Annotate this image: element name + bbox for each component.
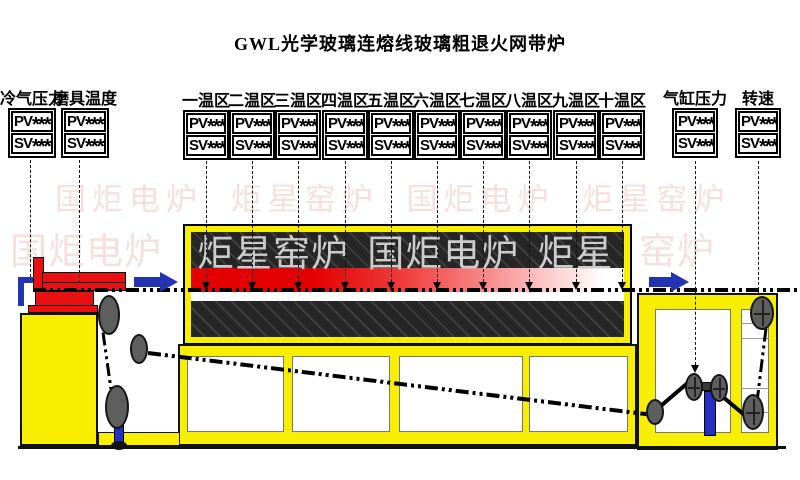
- divider: [741, 388, 769, 389]
- zone-1-temperature-gauge: 一温区PV****SV****: [183, 87, 229, 163]
- sv-value: ****: [623, 144, 642, 154]
- belt-segment: [102, 332, 113, 389]
- sv-row[interactable]: SV****: [325, 135, 365, 156]
- flow-arrow-icon: [649, 277, 671, 287]
- pv-value: ****: [623, 122, 642, 132]
- arrow-down-icon: [202, 282, 210, 290]
- pv-row[interactable]: PV****: [186, 113, 226, 134]
- sv-label: SV: [605, 137, 623, 154]
- gauge-display-box[interactable]: PV****SV****: [672, 108, 718, 158]
- support-window: [292, 356, 390, 432]
- gauge-label: 转速: [742, 85, 774, 109]
- pv-row[interactable]: PV****: [602, 113, 642, 134]
- sv-value: ****: [299, 144, 318, 154]
- pv-row[interactable]: PV****: [675, 111, 715, 132]
- gauge-label: 十温区: [598, 87, 646, 111]
- zone-5-temperature-gauge: 五温区PV****SV****: [368, 87, 414, 163]
- zone-3-temperature-gauge: 三温区PV****SV****: [275, 87, 321, 163]
- sv-value: ****: [577, 144, 596, 154]
- pv-row[interactable]: PV****: [11, 111, 53, 132]
- sv-row[interactable]: SV****: [417, 135, 457, 156]
- floor-line: [18, 446, 786, 449]
- sv-label: SV: [512, 137, 530, 154]
- zone-2-temperature-gauge: 二温区PV****SV****: [229, 87, 275, 163]
- belt-path-strip: [191, 292, 624, 301]
- pv-label: PV: [328, 115, 346, 132]
- cylinder-pressure-gauge: 气缸压力PV****SV****: [672, 85, 718, 161]
- pv-row[interactable]: PV****: [371, 113, 411, 134]
- sv-label: SV: [328, 137, 346, 154]
- pv-value: ****: [438, 122, 457, 132]
- zone-10-temperature-gauge: 十温区PV****SV****: [599, 87, 645, 163]
- sv-value: ****: [253, 144, 272, 154]
- gauge-label: 八温区: [505, 87, 553, 111]
- pv-row[interactable]: PV****: [509, 113, 549, 134]
- pv-value: ****: [85, 120, 106, 130]
- cylinder-foot: [111, 441, 127, 450]
- zone-7-temperature-gauge: 七温区PV****SV****: [460, 87, 506, 163]
- sv-row[interactable]: SV****: [371, 135, 411, 156]
- pv-row[interactable]: PV****: [463, 113, 503, 134]
- sv-value: ****: [438, 144, 457, 154]
- sv-value: ****: [346, 144, 365, 154]
- gauge-connector-line: [483, 161, 484, 282]
- pv-row[interactable]: PV****: [232, 113, 272, 134]
- pv-value: ****: [392, 122, 411, 132]
- pv-value: ****: [577, 122, 596, 132]
- flow-arrow-icon: [134, 277, 160, 287]
- roller: [685, 373, 703, 401]
- pv-label: PV: [678, 113, 696, 130]
- gauge-display-box[interactable]: PV****SV****: [368, 110, 414, 160]
- page-title: GWL光学玻璃连熔线玻璃粗退火网带炉: [0, 30, 800, 56]
- gauge-connector-line: [345, 161, 346, 282]
- sv-row[interactable]: SV****: [278, 135, 318, 156]
- pusher-slide: [35, 291, 94, 306]
- gauge-label: 磨具温度: [53, 85, 117, 109]
- support-window: [529, 356, 628, 432]
- sv-row[interactable]: SV****: [675, 133, 715, 154]
- sv-label: SV: [420, 137, 438, 154]
- pv-row[interactable]: PV****: [64, 111, 106, 132]
- zone-6-temperature-gauge: 六温区PV****SV****: [414, 87, 460, 163]
- roller: [710, 374, 728, 402]
- arrow-down-icon: [572, 282, 580, 290]
- gauge-label: 一温区: [182, 87, 230, 111]
- pv-value: ****: [253, 122, 272, 132]
- mold-temperature-gauge: 磨具温度PV****SV****: [61, 85, 109, 161]
- gauge-connector-line: [79, 160, 80, 283]
- gauge-connector-line: [206, 161, 207, 282]
- sv-label: SV: [678, 135, 696, 152]
- gauge-display-box[interactable]: PV****SV****: [414, 110, 460, 160]
- sv-row[interactable]: SV****: [186, 135, 226, 156]
- sv-label: SV: [559, 137, 577, 154]
- sv-value: ****: [484, 144, 503, 154]
- gauge-connector-line: [695, 161, 696, 365]
- arrow-down-icon: [618, 282, 626, 290]
- pv-label: PV: [67, 113, 85, 130]
- gauge-connector-line: [576, 161, 577, 282]
- sv-label: SV: [14, 135, 32, 152]
- sv-label: SV: [374, 137, 392, 154]
- gauge-display-box[interactable]: PV****SV****: [183, 110, 229, 160]
- gauge-display-box[interactable]: PV****SV****: [506, 110, 552, 160]
- gauge-label: 七温区: [459, 87, 507, 111]
- sv-label: SV: [67, 135, 85, 152]
- gauge-display-box[interactable]: PV****SV****: [735, 108, 781, 158]
- pv-value: ****: [484, 122, 503, 132]
- roller: [98, 295, 120, 335]
- gauge-label: 三温区: [274, 87, 322, 111]
- pv-label: PV: [235, 115, 253, 132]
- pv-row[interactable]: PV****: [325, 113, 365, 134]
- pv-label: PV: [466, 115, 484, 132]
- roller: [130, 334, 148, 364]
- flow-arrow-icon: [671, 272, 689, 292]
- hmi-screen: GWL光学玻璃连熔线玻璃粗退火网带炉 国炬电炉 炬星窑炉 国炬电炉 炬星窑炉 国…: [0, 0, 800, 480]
- watermark-row2-right: 窑炉: [639, 221, 715, 275]
- pv-label: PV: [605, 115, 623, 132]
- pv-row[interactable]: PV****: [278, 113, 318, 134]
- gauge-connector-line: [252, 161, 253, 282]
- gauge-display-box[interactable]: PV****SV****: [553, 110, 599, 160]
- gauge-display-box[interactable]: PV****SV****: [599, 110, 645, 160]
- flow-arrow-icon: [160, 272, 178, 292]
- roller: [105, 385, 129, 429]
- sv-row[interactable]: SV****: [556, 135, 596, 156]
- sv-row[interactable]: SV****: [232, 135, 272, 156]
- roller: [646, 399, 664, 425]
- zone-8-temperature-gauge: 八温区PV****SV****: [506, 87, 552, 163]
- sv-value: ****: [85, 142, 106, 152]
- watermark-row1: 国炬电炉 炬星窑炉 国炬电炉 炬星窑炉: [55, 174, 730, 219]
- zone-9-temperature-gauge: 九温区PV****SV****: [553, 87, 599, 163]
- pv-label: PV: [14, 113, 32, 130]
- speed-gauge: 转速PV****SV****: [735, 85, 781, 161]
- arrow-down-icon: [294, 282, 302, 290]
- sv-label: SV: [741, 135, 759, 152]
- gauge-label: 二温区: [228, 87, 276, 111]
- pv-label: PV: [281, 115, 299, 132]
- zone-4-temperature-gauge: 四温区PV****SV****: [322, 87, 368, 163]
- sv-value: ****: [759, 142, 778, 152]
- gauge-label: 气缸压力: [663, 85, 727, 109]
- sv-value: ****: [207, 144, 226, 154]
- sv-row[interactable]: SV****: [509, 135, 549, 156]
- pv-value: ****: [696, 120, 715, 130]
- gauge-display-box[interactable]: PV****SV****: [275, 110, 321, 160]
- gauge-connector-line: [529, 161, 530, 282]
- gauge-label: 九温区: [552, 87, 600, 111]
- gauge-display-box[interactable]: PV****SV****: [322, 110, 368, 160]
- pv-label: PV: [420, 115, 438, 132]
- pv-label: PV: [741, 113, 759, 130]
- sv-label: SV: [281, 137, 299, 154]
- gauge-connector-line: [622, 161, 623, 282]
- roller: [750, 296, 774, 330]
- pv-label: PV: [189, 115, 207, 132]
- gauge-display-box[interactable]: PV****SV****: [61, 108, 109, 158]
- arrow-down-icon: [433, 282, 441, 290]
- pv-value: ****: [759, 120, 778, 130]
- gauge-label: 五温区: [367, 87, 415, 111]
- sv-row[interactable]: SV****: [64, 133, 106, 154]
- sv-row[interactable]: SV****: [738, 133, 778, 154]
- sv-label: SV: [189, 137, 207, 154]
- pv-value: ****: [346, 122, 365, 132]
- sv-label: SV: [235, 137, 253, 154]
- inlet-clamp: [18, 277, 24, 306]
- pv-label: PV: [374, 115, 392, 132]
- pusher-base: [28, 305, 98, 313]
- gauge-display-box[interactable]: PV****SV****: [229, 110, 275, 160]
- arrow-down-icon: [479, 282, 487, 290]
- arrow-down-icon: [387, 282, 395, 290]
- gauge-connector-line: [298, 161, 299, 282]
- pv-value: ****: [32, 120, 53, 130]
- arrow-down-icon: [691, 365, 699, 373]
- gauge-label: 四温区: [321, 87, 369, 111]
- arrow-down-icon: [525, 282, 533, 290]
- pv-row[interactable]: PV****: [556, 113, 596, 134]
- sv-value: ****: [530, 144, 549, 154]
- arrow-down-icon: [341, 282, 349, 290]
- pv-value: ****: [207, 122, 226, 132]
- pv-row[interactable]: PV****: [738, 111, 778, 132]
- sv-row[interactable]: SV****: [602, 135, 642, 156]
- sv-row[interactable]: SV****: [463, 135, 503, 156]
- inlet-stand-block: [20, 313, 98, 446]
- watermark-row2-on-furnace: 炬星窑炉 国炬电炉 炬星: [197, 223, 614, 277]
- gauge-connector-line: [758, 161, 759, 295]
- arrow-down-icon: [248, 282, 256, 290]
- roller: [742, 394, 764, 430]
- gauge-connector-line: [30, 160, 31, 277]
- pv-label: PV: [559, 115, 577, 132]
- gauge-connector-line: [391, 161, 392, 282]
- gauge-label: 六温区: [413, 87, 461, 111]
- sv-label: SV: [466, 137, 484, 154]
- sv-value: ****: [392, 144, 411, 154]
- pv-row[interactable]: PV****: [417, 113, 457, 134]
- sv-row[interactable]: SV****: [11, 133, 53, 154]
- gauge-connector-line: [437, 161, 438, 282]
- cold-air-pressure-gauge: 冷气压力PV****SV****: [8, 85, 56, 161]
- sv-value: ****: [696, 142, 715, 152]
- gauge-display-box[interactable]: PV****SV****: [8, 108, 56, 158]
- pv-label: PV: [512, 115, 530, 132]
- pv-value: ****: [530, 122, 549, 132]
- gauge-display-box[interactable]: PV****SV****: [460, 110, 506, 160]
- sv-value: ****: [32, 142, 53, 152]
- pv-value: ****: [299, 122, 318, 132]
